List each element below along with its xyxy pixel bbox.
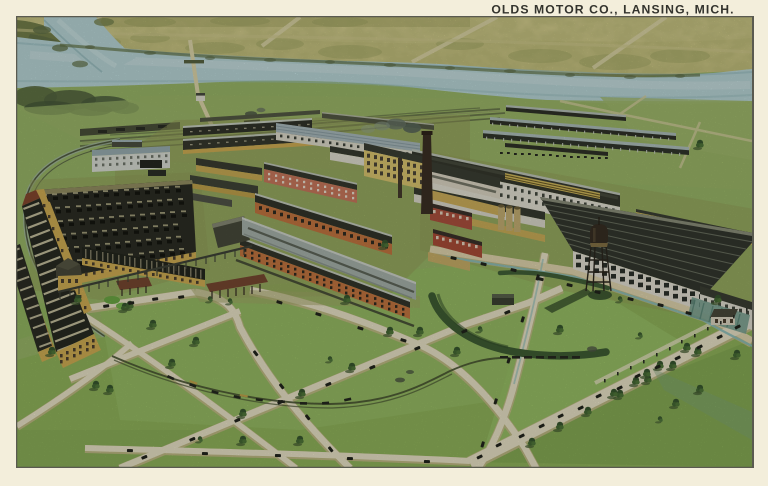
svg-text:OLDS MOTOR CO., LANSING, MICH.: OLDS MOTOR CO., LANSING, MICH.	[491, 3, 734, 17]
